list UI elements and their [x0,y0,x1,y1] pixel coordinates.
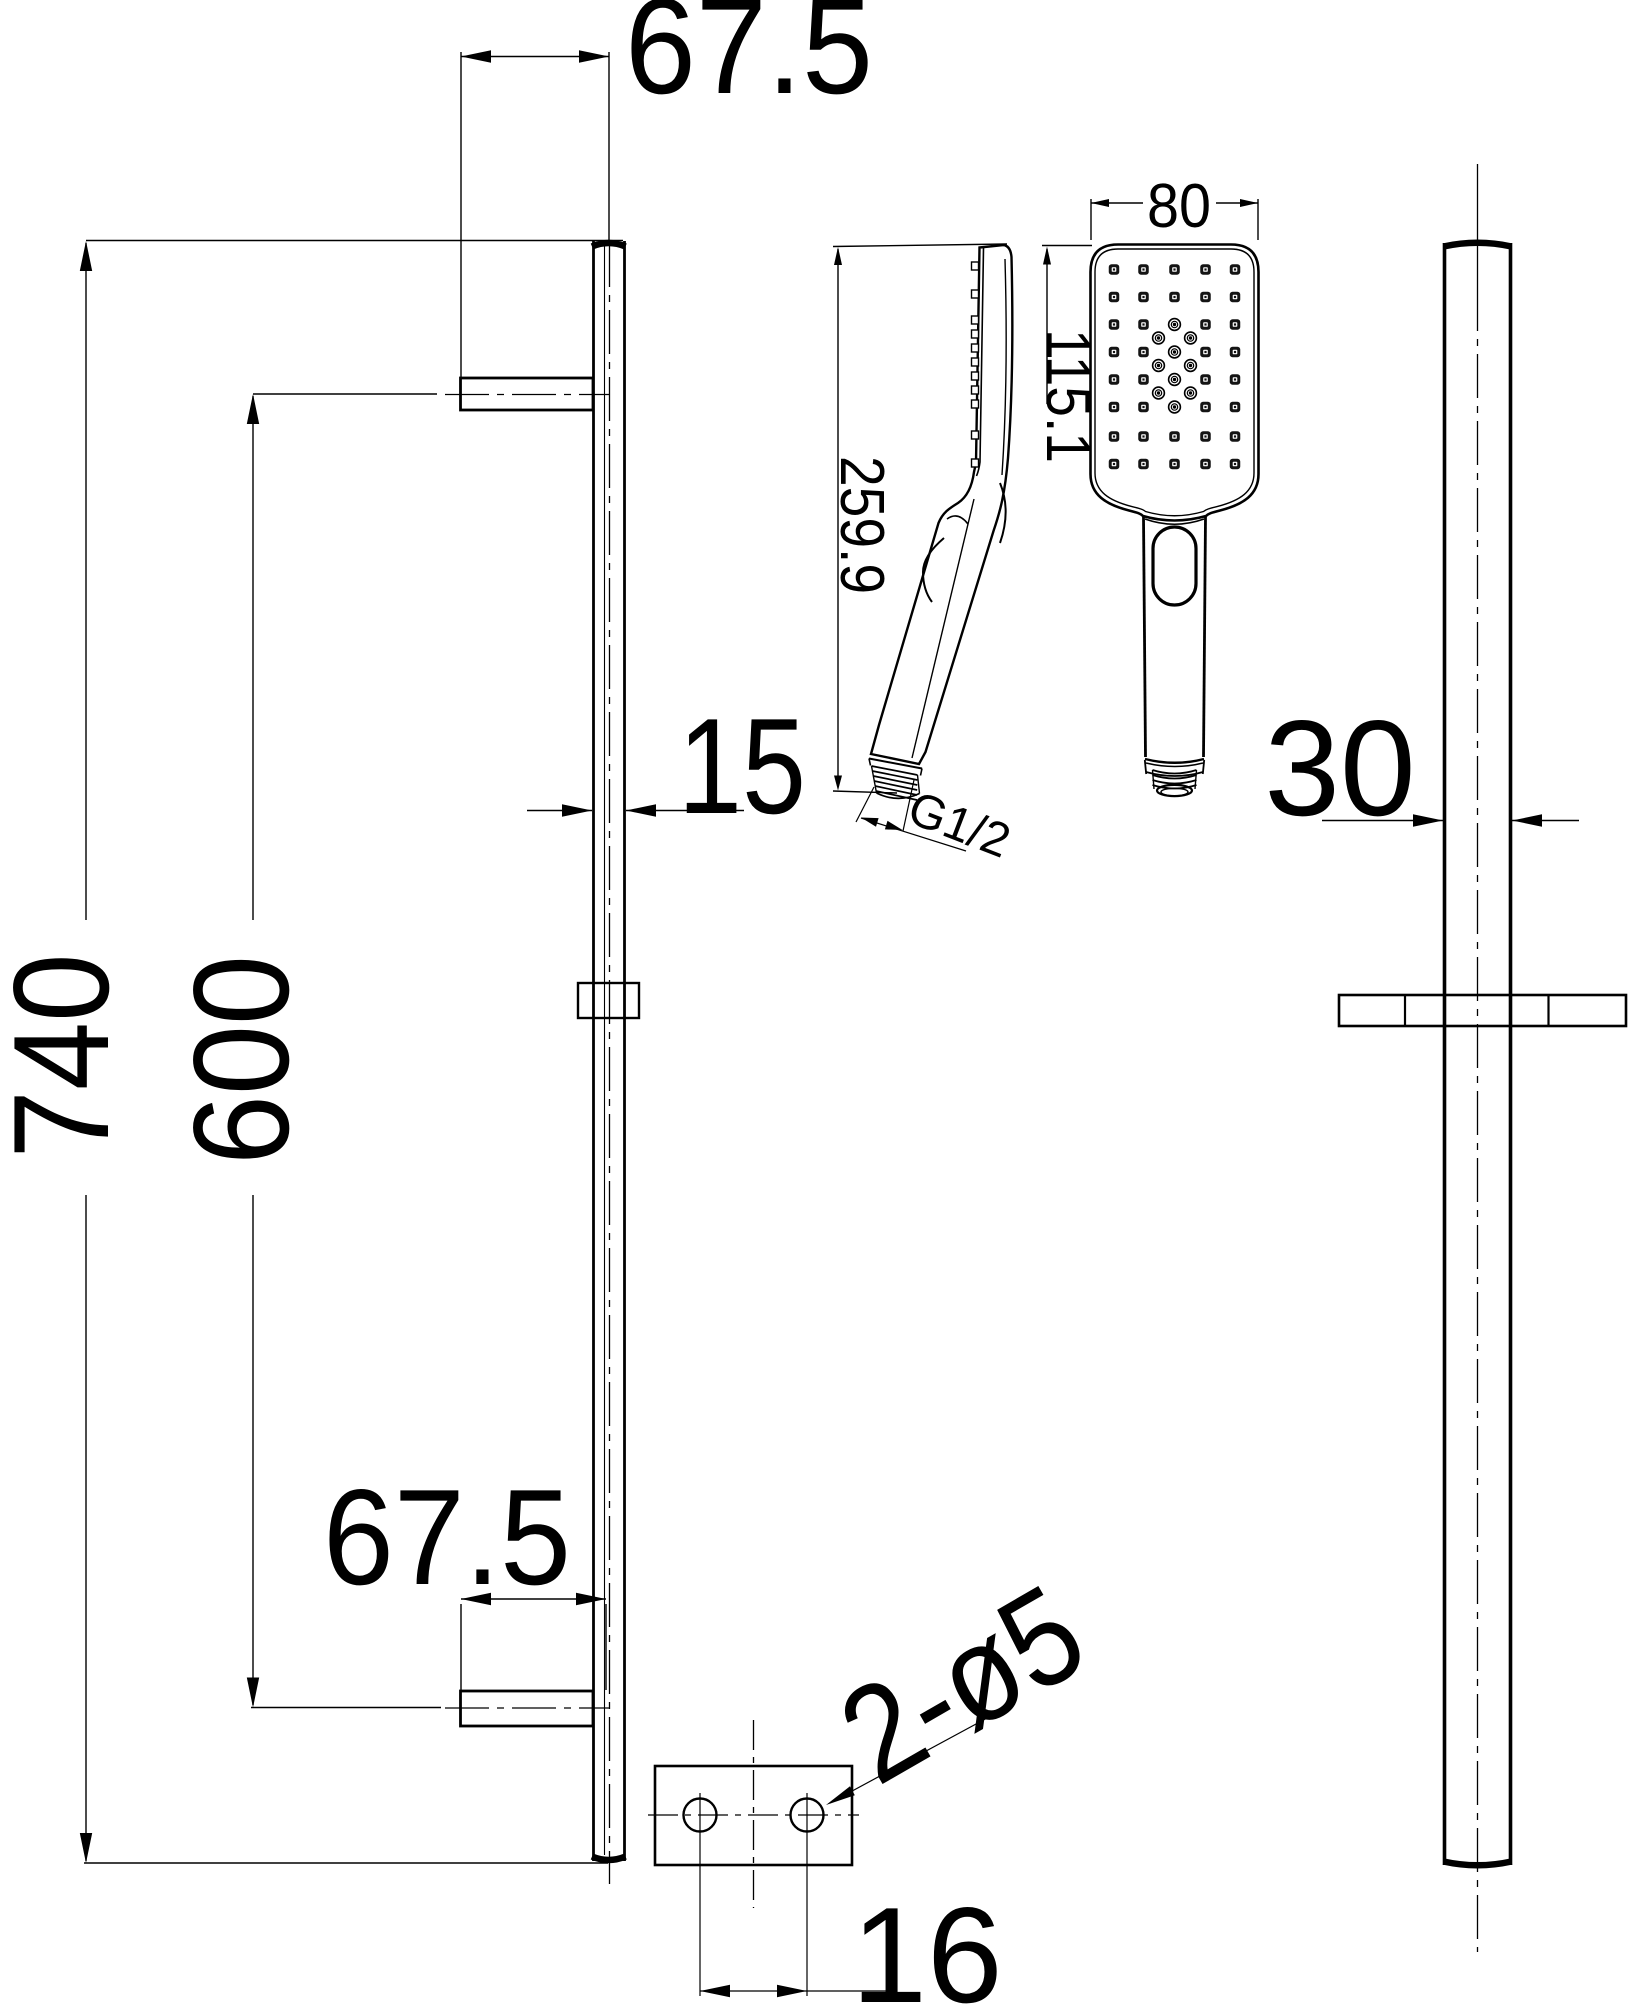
svg-text:67.5: 67.5 [625,0,873,122]
svg-text:16: 16 [851,1879,1002,2011]
svg-text:15: 15 [678,690,806,842]
svg-text:259.9: 259.9 [827,456,896,594]
svg-text:67.5: 67.5 [323,1461,571,1613]
svg-text:740: 740 [0,954,137,1159]
svg-text:80: 80 [1147,172,1211,241]
svg-text:600: 600 [165,955,317,1165]
